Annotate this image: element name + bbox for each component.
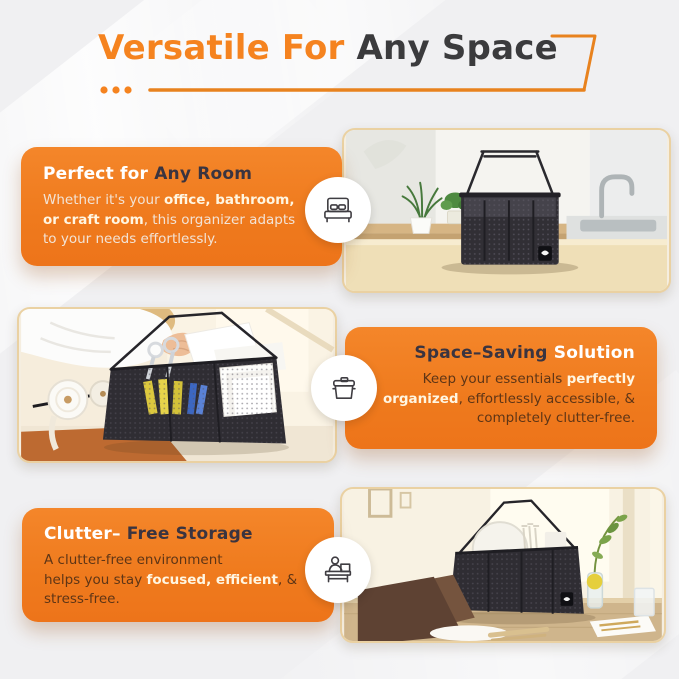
highlight-segment: organized <box>383 391 459 407</box>
feature-icon-circle <box>305 177 371 243</box>
text-segment: to your needs effortlessly. <box>43 231 218 247</box>
feature-card-clutter-free: Clutter– Free Storage A clutter-free env… <box>22 508 334 622</box>
kitchen-scene <box>344 130 669 291</box>
body-line: completely clutter-free. <box>353 409 635 429</box>
highlight-segment: focused, efficient <box>146 572 278 588</box>
text-segment: completely clutter-free. <box>477 410 635 426</box>
body-line: or craft room, this organizer adapts <box>43 211 324 231</box>
feature-card-any-room: Perfect for Any Room Whether it's your o… <box>21 147 342 266</box>
dot-icon <box>124 86 131 93</box>
highlight-segment: perfectly <box>567 371 635 387</box>
drinking-glass <box>635 588 654 615</box>
photo-craft-caddy <box>17 307 337 463</box>
craft-scene <box>19 309 335 461</box>
text-segment: , this organizer adapts <box>144 212 295 228</box>
title-segment: Solution <box>554 343 635 363</box>
header-underline-decoration <box>90 24 602 102</box>
bed-icon <box>314 186 362 234</box>
text-segment: Whether it's your <box>43 192 164 208</box>
card-title: Space–Saving Solution <box>353 343 635 363</box>
title-segment: Any Room <box>154 164 252 184</box>
title-segment: Free Storage <box>127 524 253 544</box>
text-segment: stress-free. <box>44 591 120 607</box>
card-body: Whether it's your office, bathroom, or c… <box>43 191 324 250</box>
body-line: Whether it's your office, bathroom, <box>43 191 324 211</box>
text-segment: , effortlessly accessible, & <box>459 391 635 407</box>
dot-icon <box>100 86 107 93</box>
body-line: stress-free. <box>44 590 318 610</box>
feature-icon-circle <box>305 537 371 603</box>
photo-dining-table <box>340 487 666 643</box>
text-segment: helps you stay <box>44 572 146 588</box>
feature-icon-circle <box>311 355 377 421</box>
text-segment: Keep your essentials <box>423 371 567 387</box>
card-title: Clutter– Free Storage <box>44 524 318 544</box>
title-segment: Perfect for <box>43 164 154 184</box>
dining-scene <box>342 489 664 641</box>
highlight-segment: or craft room <box>43 212 144 228</box>
desk-person-icon <box>314 546 362 594</box>
dot-icon <box>112 86 119 93</box>
corner-bracket <box>552 36 595 90</box>
card-body: A clutter-free environment helps you sta… <box>44 551 318 610</box>
body-line: Keep your essentials perfectly <box>353 370 635 390</box>
infographic-page: Versatile For Any Space Perfect for Any … <box>0 0 679 679</box>
card-title: Perfect for Any Room <box>43 164 324 184</box>
card-body: Keep your essentials perfectly organized… <box>353 370 635 429</box>
text-segment: A clutter-free environment <box>44 552 223 568</box>
title-segment: Space–Saving <box>414 343 553 363</box>
title-segment: Clutter– <box>44 524 127 544</box>
body-line: organized, effortlessly accessible, & <box>353 390 635 410</box>
feature-card-space-saving: Space–Saving Solution Keep your essentia… <box>345 327 657 449</box>
photo-kitchen-counter <box>342 128 671 293</box>
text-segment: , & <box>278 572 297 588</box>
storage-bin-icon <box>320 364 368 412</box>
highlight-segment: office, bathroom, <box>164 192 295 208</box>
body-line: to your needs effortlessly. <box>43 230 324 250</box>
body-line: A clutter-free environment <box>44 551 318 571</box>
body-line: helps you stay focused, efficient, & <box>44 571 318 591</box>
